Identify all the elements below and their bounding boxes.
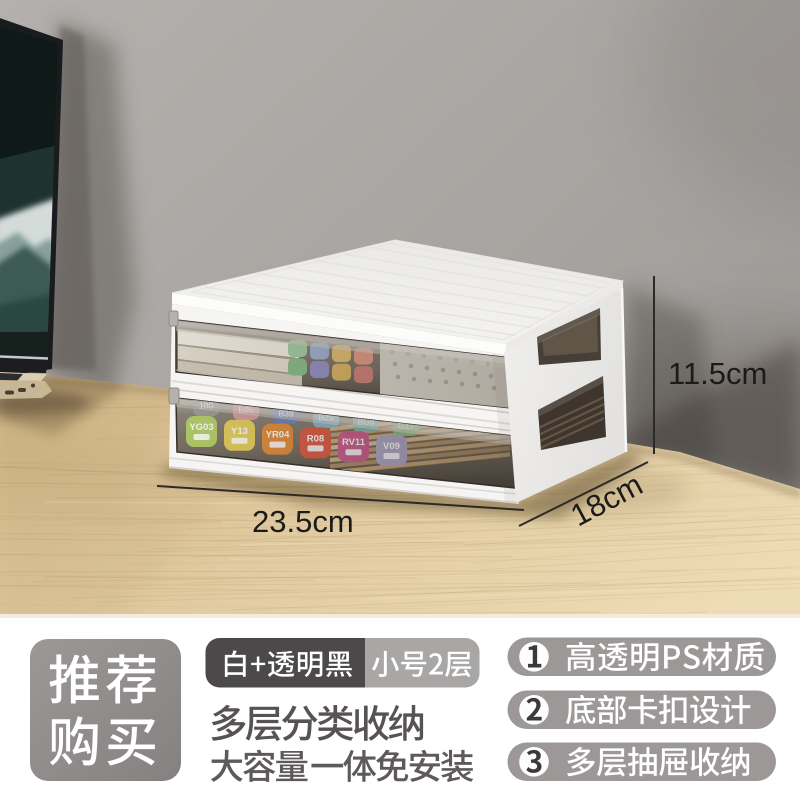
svg-text:11.5cm: 11.5cm (668, 356, 767, 391)
svg-text:23.5cm: 23.5cm (252, 504, 354, 539)
